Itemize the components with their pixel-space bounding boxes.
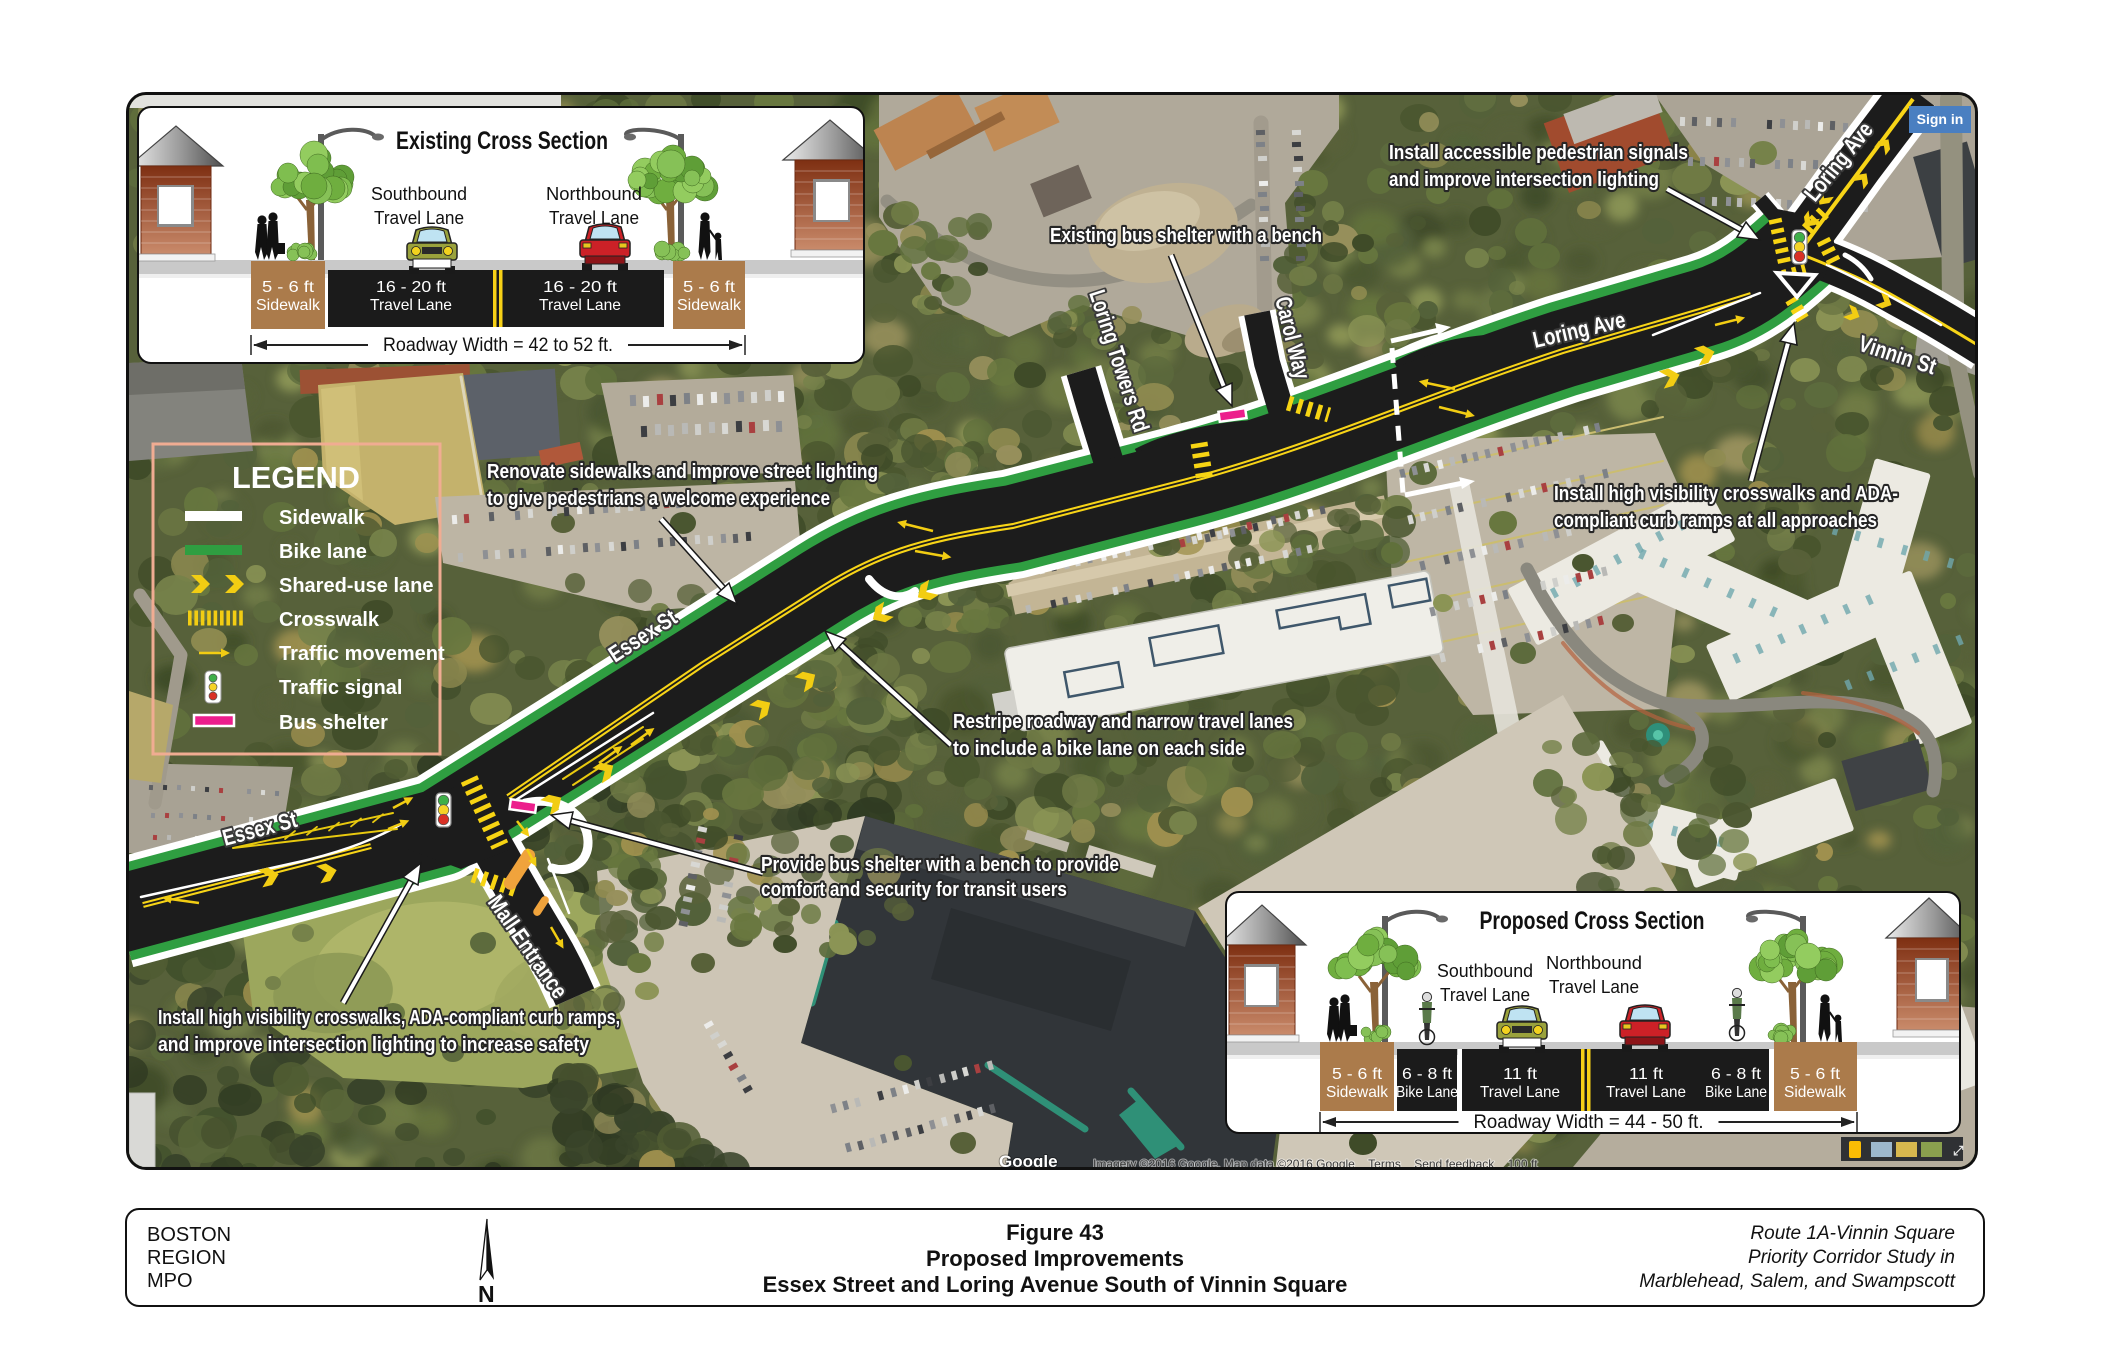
svg-text:Travel Lane: Travel Lane <box>1440 985 1530 1005</box>
svg-text:Install high visibility crossw: Install high visibility crosswalks and A… <box>1554 483 1898 505</box>
svg-text:Provide bus shelter with a ben: Provide bus shelter with a bench to prov… <box>761 854 1119 876</box>
svg-text:5 - 6 ft: 5 - 6 ft <box>1332 1066 1383 1083</box>
svg-text:5 - 6 ft: 5 - 6 ft <box>1790 1066 1841 1083</box>
svg-text:and improve intersection light: and improve intersection lighting <box>1389 169 1659 191</box>
svg-text:Northbound: Northbound <box>546 184 642 204</box>
svg-text:Travel Lane: Travel Lane <box>1480 1084 1560 1101</box>
svg-text:Sidewalk: Sidewalk <box>279 507 365 529</box>
svg-text:Sidewalk: Sidewalk <box>1784 1084 1847 1101</box>
svg-text:Southbound: Southbound <box>371 184 467 204</box>
svg-text:Bike Lane: Bike Lane <box>1396 1084 1458 1101</box>
svg-text:16 - 20 ft: 16 - 20 ft <box>543 279 618 296</box>
svg-text:Imagery ©2016 Google, Map data: Imagery ©2016 Google, Map data ©2016 Goo… <box>1093 1157 1538 1170</box>
svg-text:Sign in: Sign in <box>1917 111 1964 127</box>
svg-text:⤢: ⤢ <box>1953 1143 1963 1158</box>
svg-text:Install accessible pedestrian: Install accessible pedestrian signals <box>1389 142 1688 164</box>
svg-text:Northbound: Northbound <box>1546 953 1642 973</box>
svg-text:Sidewalk: Sidewalk <box>677 297 742 314</box>
svg-text:Travel Lane: Travel Lane <box>1606 1084 1686 1101</box>
svg-text:5 - 6 ft: 5 - 6 ft <box>262 279 315 296</box>
svg-text:16 - 20 ft: 16 - 20 ft <box>376 279 447 296</box>
svg-text:Existing bus shelter with a be: Existing bus shelter with a bench <box>1050 225 1322 247</box>
svg-text:6 - 8 ft: 6 - 8 ft <box>1711 1066 1762 1083</box>
svg-text:Travel Lane: Travel Lane <box>1549 977 1639 997</box>
svg-text:Renovate sidewalks and improve: Renovate sidewalks and improve street li… <box>487 461 878 483</box>
svg-text:compliant curb ramps at all ap: compliant curb ramps at all approaches <box>1554 510 1877 532</box>
svg-text:to give pedestrians a welcome: to give pedestrians a welcome experience <box>487 488 830 510</box>
svg-text:11 ft: 11 ft <box>1503 1066 1538 1083</box>
svg-text:and improve intersection light: and improve intersection lighting to inc… <box>158 1034 590 1056</box>
svg-text:Bike lane: Bike lane <box>279 541 367 563</box>
svg-text:Install high visibility crossw: Install high visibility crosswalks, ADA-… <box>158 1007 620 1029</box>
svg-text:comfort and security for trans: comfort and security for transit users <box>761 879 1067 901</box>
svg-text:Existing Cross Section: Existing Cross Section <box>396 127 608 155</box>
svg-text:to include a bike lane on each: to include a bike lane on each side <box>953 738 1245 760</box>
svg-text:Travel Lane: Travel Lane <box>549 208 639 228</box>
svg-text:5 - 6 ft: 5 - 6 ft <box>683 279 736 296</box>
svg-text:Sidewalk: Sidewalk <box>256 297 321 314</box>
svg-text:11 ft: 11 ft <box>1629 1066 1664 1083</box>
svg-text:Traffic signal: Traffic signal <box>279 677 402 699</box>
svg-text:LEGEND: LEGEND <box>232 460 360 495</box>
svg-text:Bike Lane: Bike Lane <box>1705 1084 1767 1101</box>
svg-text:Crosswalk: Crosswalk <box>279 609 380 631</box>
svg-text:Google: Google <box>999 1152 1058 1170</box>
svg-text:Travel Lane: Travel Lane <box>374 208 464 228</box>
svg-text:Roadway Width = 44 - 50 ft.: Roadway Width = 44 - 50 ft. <box>1474 1112 1704 1133</box>
svg-text:Travel Lane: Travel Lane <box>539 297 621 314</box>
svg-text:6 - 8 ft: 6 - 8 ft <box>1402 1066 1453 1083</box>
svg-text:Travel Lane: Travel Lane <box>370 297 452 314</box>
svg-text:Roadway Width = 42 to 52 ft.: Roadway Width = 42 to 52 ft. <box>383 335 613 356</box>
svg-text:Sidewalk: Sidewalk <box>1326 1084 1389 1101</box>
svg-text:Proposed Cross Section: Proposed Cross Section <box>1480 907 1705 935</box>
svg-text:Southbound: Southbound <box>1437 961 1533 981</box>
svg-text:Traffic movement: Traffic movement <box>279 643 445 665</box>
svg-text:Restripe roadway and narrow tr: Restripe roadway and narrow travel lanes <box>953 711 1293 733</box>
svg-text:Bus shelter: Bus shelter <box>279 712 388 734</box>
svg-text:Shared-use lane: Shared-use lane <box>279 575 434 597</box>
